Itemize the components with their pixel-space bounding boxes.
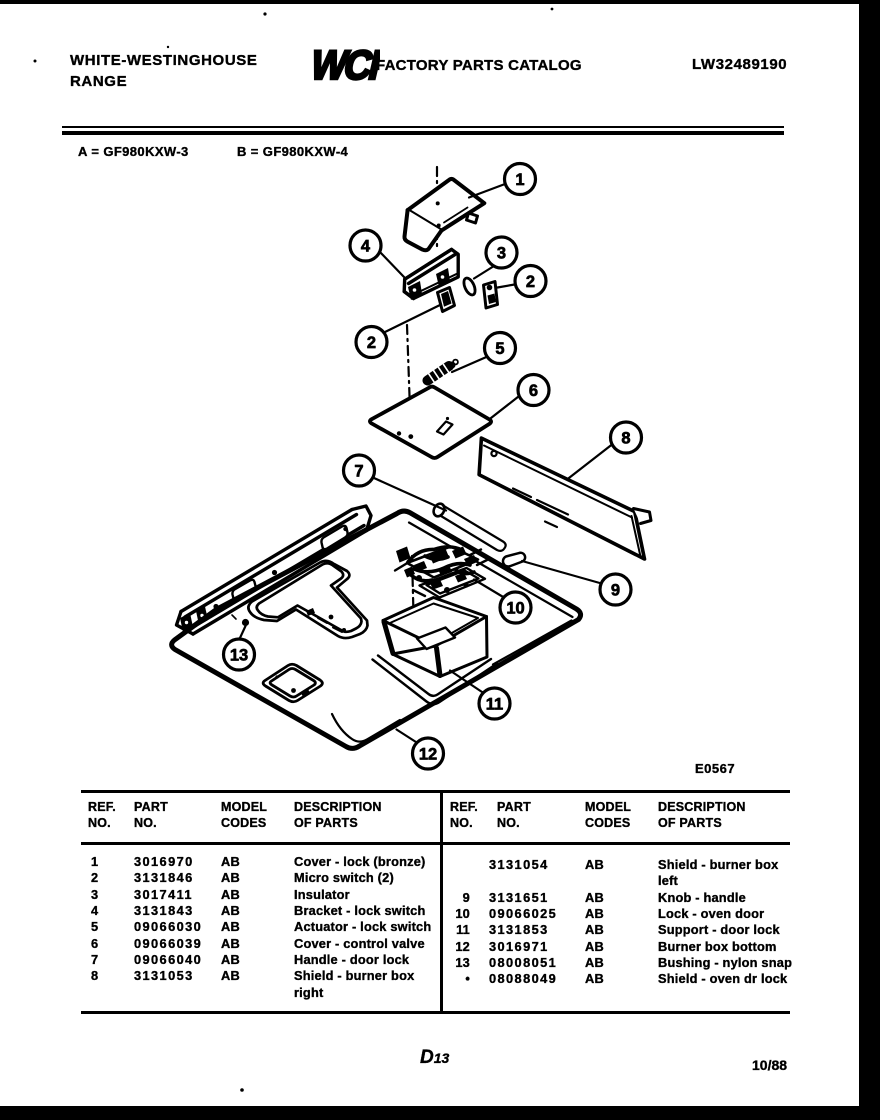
svg-text:1: 1 — [515, 171, 524, 189]
svg-text:7: 7 — [354, 463, 363, 481]
svg-text:10: 10 — [506, 600, 524, 618]
svg-text:6: 6 — [529, 382, 538, 400]
svg-text:2: 2 — [367, 334, 376, 352]
svg-text:11: 11 — [486, 696, 503, 714]
svg-text:9: 9 — [611, 582, 620, 600]
svg-text:5: 5 — [495, 340, 504, 358]
svg-text:8: 8 — [621, 430, 630, 448]
svg-text:4: 4 — [361, 238, 371, 256]
svg-text:2: 2 — [526, 273, 535, 291]
svg-text:12: 12 — [419, 746, 437, 764]
svg-text:3: 3 — [497, 245, 506, 263]
svg-text:13: 13 — [230, 647, 248, 665]
